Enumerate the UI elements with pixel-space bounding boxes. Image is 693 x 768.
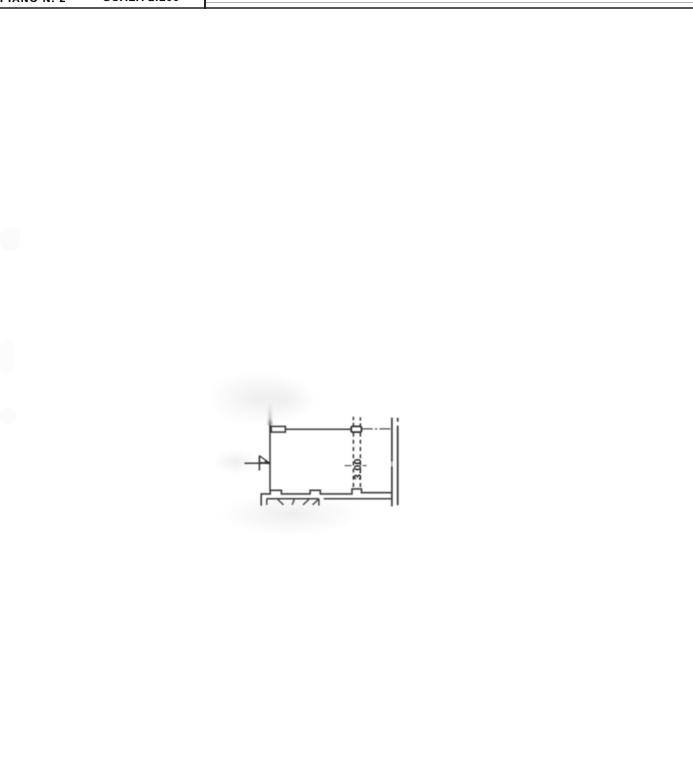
svg-text:3.00: 3.00	[352, 458, 364, 480]
